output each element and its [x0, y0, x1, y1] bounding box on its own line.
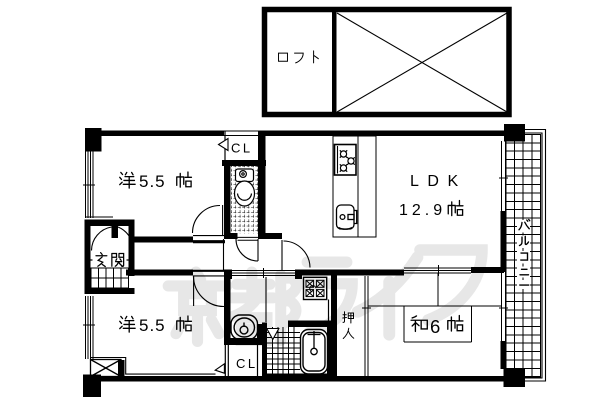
svg-text:5.5: 5.5	[139, 172, 166, 191]
svg-text:6: 6	[430, 316, 440, 337]
svg-text:12.9: 12.9	[399, 202, 446, 219]
svg-text:CL: CL	[231, 141, 253, 156]
svg-text:5.5: 5.5	[139, 316, 166, 335]
svg-text:CL: CL	[236, 356, 258, 371]
svg-text:LDK: LDK	[410, 173, 467, 190]
